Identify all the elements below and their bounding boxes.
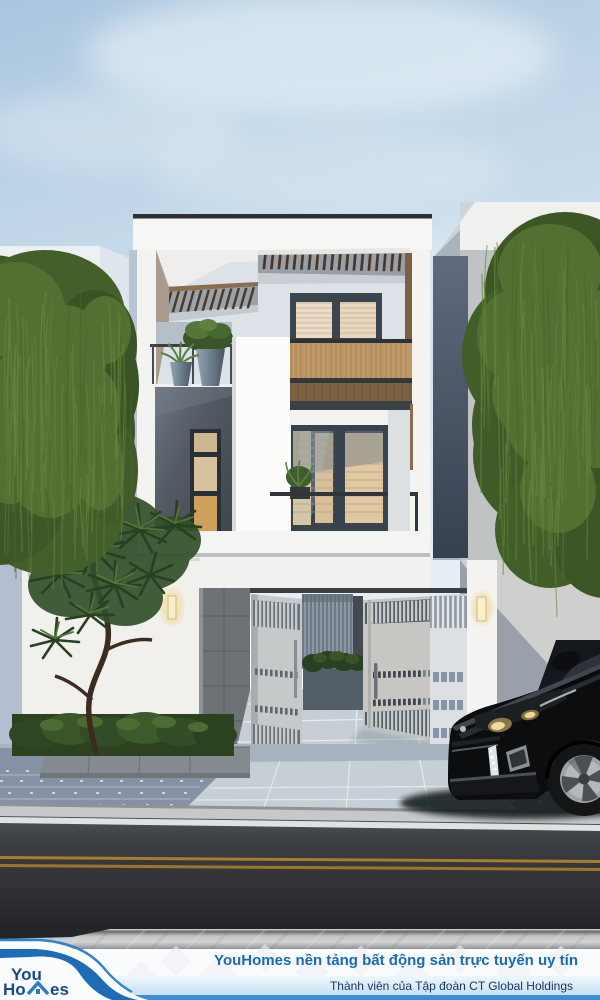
svg-text:YouHomes nền tảng bất động sản: YouHomes nền tảng bất động sản trực tuyế… (214, 952, 578, 969)
svg-text:Thành viên của Tập đoàn CT Glo: Thành viên của Tập đoàn CT Global Holdin… (330, 979, 573, 993)
svg-text:es: es (50, 980, 69, 999)
svg-text:Ho: Ho (3, 980, 26, 999)
